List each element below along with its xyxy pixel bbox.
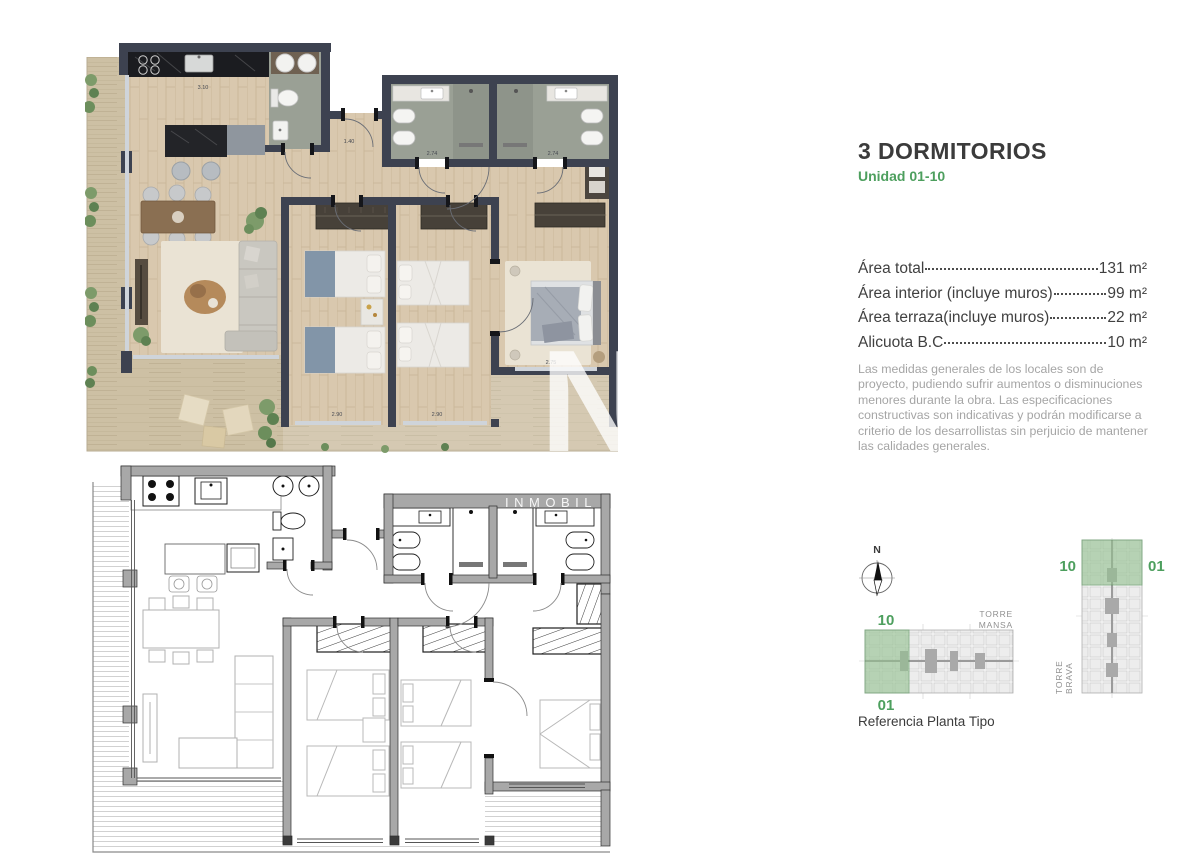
- dim-bath-left: 2.74: [427, 151, 438, 157]
- highlighted-unit: [865, 630, 909, 693]
- round-sink-icon: [276, 54, 294, 72]
- area-value: 131 m²: [1099, 260, 1147, 278]
- pouf-icon: [510, 350, 520, 360]
- area-value: 22 m²: [1107, 309, 1147, 327]
- mansa-unit-bottom-label: 01: [878, 697, 895, 714]
- brava-name-line2: BRAVA: [1064, 662, 1074, 694]
- area-label: Alicuota B.C: [858, 334, 943, 352]
- beds: [307, 670, 602, 796]
- wardrobes: [317, 584, 603, 654]
- technical-floor-plan: INMOBIL: [85, 462, 642, 858]
- dotted-leader: [944, 342, 1106, 344]
- brava-unit-right-label: 01: [1148, 558, 1165, 575]
- logo-watermark: N: [540, 320, 625, 453]
- toilet-icon: [581, 109, 603, 123]
- compass-icon: N: [859, 544, 895, 596]
- bed: [305, 251, 385, 297]
- reference-plan-map: N 10 01 TORRE MANSA: [855, 538, 1175, 716]
- coffee-table: [184, 280, 226, 314]
- dotted-leader: [1054, 293, 1107, 295]
- mansa-name-line1: TORRE: [979, 609, 1013, 619]
- tower-mansa-diagram: 10 01 TORRE MANSA: [859, 609, 1019, 714]
- area-row: Área interior (incluye muros) 99 m²: [858, 285, 1147, 310]
- toilet-icon: [393, 109, 415, 123]
- area-value: 99 m²: [1107, 285, 1147, 303]
- bed: [397, 323, 469, 367]
- dotted-leader: [925, 268, 1097, 270]
- dim-bath-right: 2.74: [548, 151, 559, 157]
- living-dining: [143, 596, 273, 768]
- sink-icon: [555, 88, 577, 99]
- brand-watermark: INMOBIL: [505, 495, 597, 510]
- shower-head-icon: [514, 89, 518, 93]
- area-label: Área total: [858, 260, 924, 278]
- bidet-icon: [393, 131, 415, 145]
- mansa-name-line2: MANSA: [979, 620, 1013, 630]
- highlighted-unit: [1082, 540, 1142, 585]
- area-label: Área interior (incluye muros): [858, 285, 1053, 303]
- kitchen: [131, 474, 281, 592]
- dim-hall: 1.40: [344, 139, 355, 145]
- bidet-icon: [581, 131, 603, 145]
- stool-icon: [172, 162, 190, 180]
- tower-brava-diagram: 10 01 TORRE BRAVA: [1054, 538, 1165, 698]
- dim-bedroom1: 2.90: [332, 412, 343, 418]
- page-title: 3 DORMITORIOS: [858, 138, 1047, 165]
- unit-range-label: Unidad 01-10: [858, 168, 1047, 184]
- mansa-unit-top-label: 10: [878, 612, 895, 629]
- area-row: Área terraza(incluye muros) 22 m²: [858, 309, 1147, 334]
- area-label: Área terraza(incluye muros): [858, 309, 1049, 327]
- sink-icon: [421, 88, 443, 99]
- dim-bedroom2: 2.90: [432, 412, 443, 418]
- area-row: Alicuota B.C 10 m²: [858, 334, 1147, 359]
- bathroom-1: [273, 476, 319, 560]
- nightstand: [361, 299, 383, 325]
- stool-icon: [202, 162, 220, 180]
- toilet-icon: [278, 90, 298, 106]
- round-sink-icon: [298, 54, 316, 72]
- bed: [305, 327, 385, 373]
- brochure-page: 3.10 1.40 2.74 2.74 2.90 2.90 2.75 N: [0, 0, 1200, 865]
- area-value: 10 m²: [1107, 334, 1147, 352]
- reference-caption: Referencia Planta Tipo: [858, 714, 995, 729]
- dim-kitchen: 3.10: [198, 85, 209, 91]
- shower-head-icon: [469, 89, 473, 93]
- compass-north-label: N: [873, 544, 881, 556]
- disclaimer-text: Las medidas generales de los locales son…: [858, 362, 1154, 454]
- bathroom-floors: [269, 49, 609, 159]
- area-row: Área total 131 m²: [858, 260, 1147, 285]
- dotted-leader: [1050, 317, 1106, 319]
- brava-name-line1: TORRE: [1054, 660, 1064, 694]
- brava-unit-left-label: 10: [1059, 558, 1076, 575]
- rendered-floor-plan: 3.10 1.40 2.74 2.74 2.90 2.90 2.75 N: [85, 35, 625, 453]
- title-block: 3 DORMITORIOS Unidad 01-10: [858, 138, 1047, 184]
- pouf-icon: [510, 266, 520, 276]
- bed: [397, 261, 469, 305]
- area-list: Área total 131 m² Área interior (incluye…: [858, 260, 1147, 358]
- plant-icon: [259, 399, 275, 415]
